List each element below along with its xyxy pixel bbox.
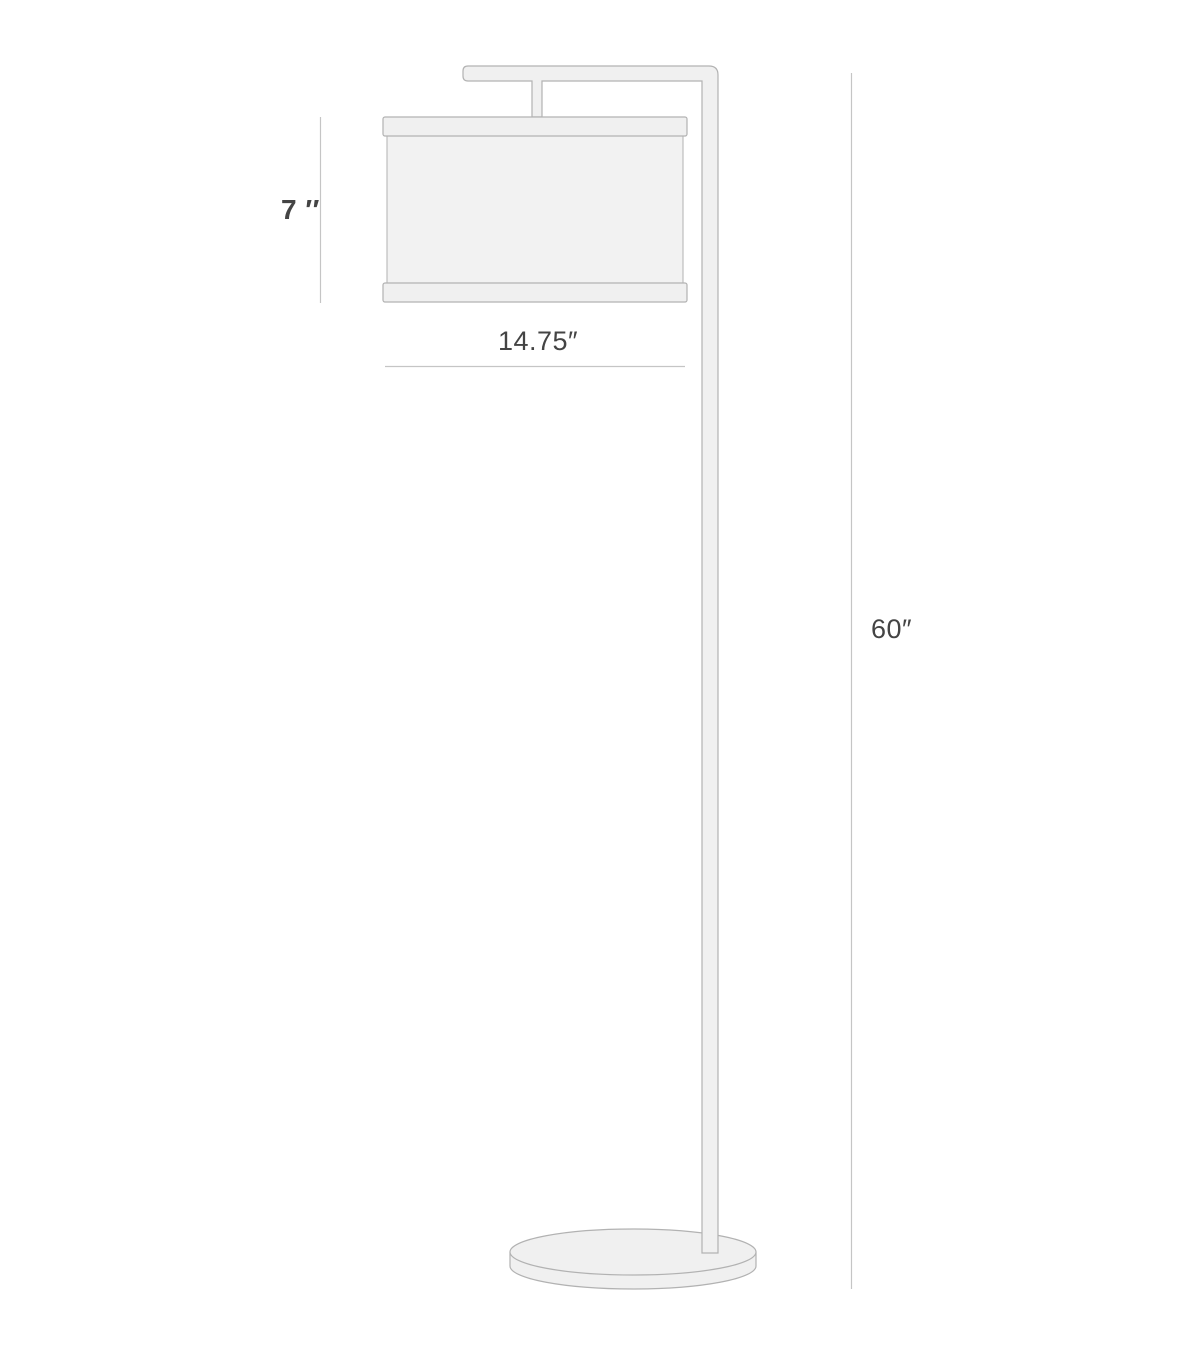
lamp-base-top <box>510 1229 756 1275</box>
lamp-illustration <box>383 66 756 1289</box>
shade-body <box>387 130 683 290</box>
lamp-height-label: 60″ <box>871 614 912 644</box>
lamp-diagram-canvas: 7 ′′ 14.75″ 60″ <box>0 0 1200 1360</box>
shade-top-ring <box>383 117 687 136</box>
lamp-base <box>510 1229 756 1289</box>
floor-lamp-dimension-diagram: 7 ′′ 14.75″ 60″ <box>0 0 1200 1360</box>
lamp-shade <box>383 117 687 302</box>
shade-bottom-ring <box>383 283 687 302</box>
shade-width-label: 14.75″ <box>498 326 578 356</box>
shade-height-label: 7 ′′ <box>281 194 320 225</box>
